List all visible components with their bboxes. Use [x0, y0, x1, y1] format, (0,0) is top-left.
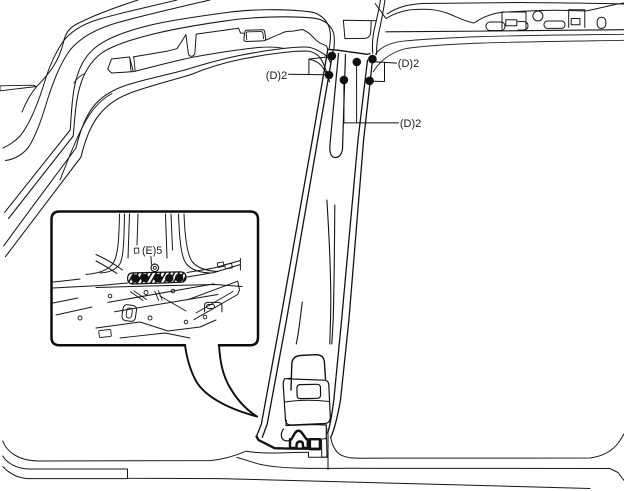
svg-text:(E)5: (E)5	[142, 245, 162, 257]
svg-text:(D)2: (D)2	[266, 70, 287, 82]
svg-text:(D)2: (D)2	[400, 118, 421, 130]
svg-text:(D)2: (D)2	[398, 58, 419, 70]
